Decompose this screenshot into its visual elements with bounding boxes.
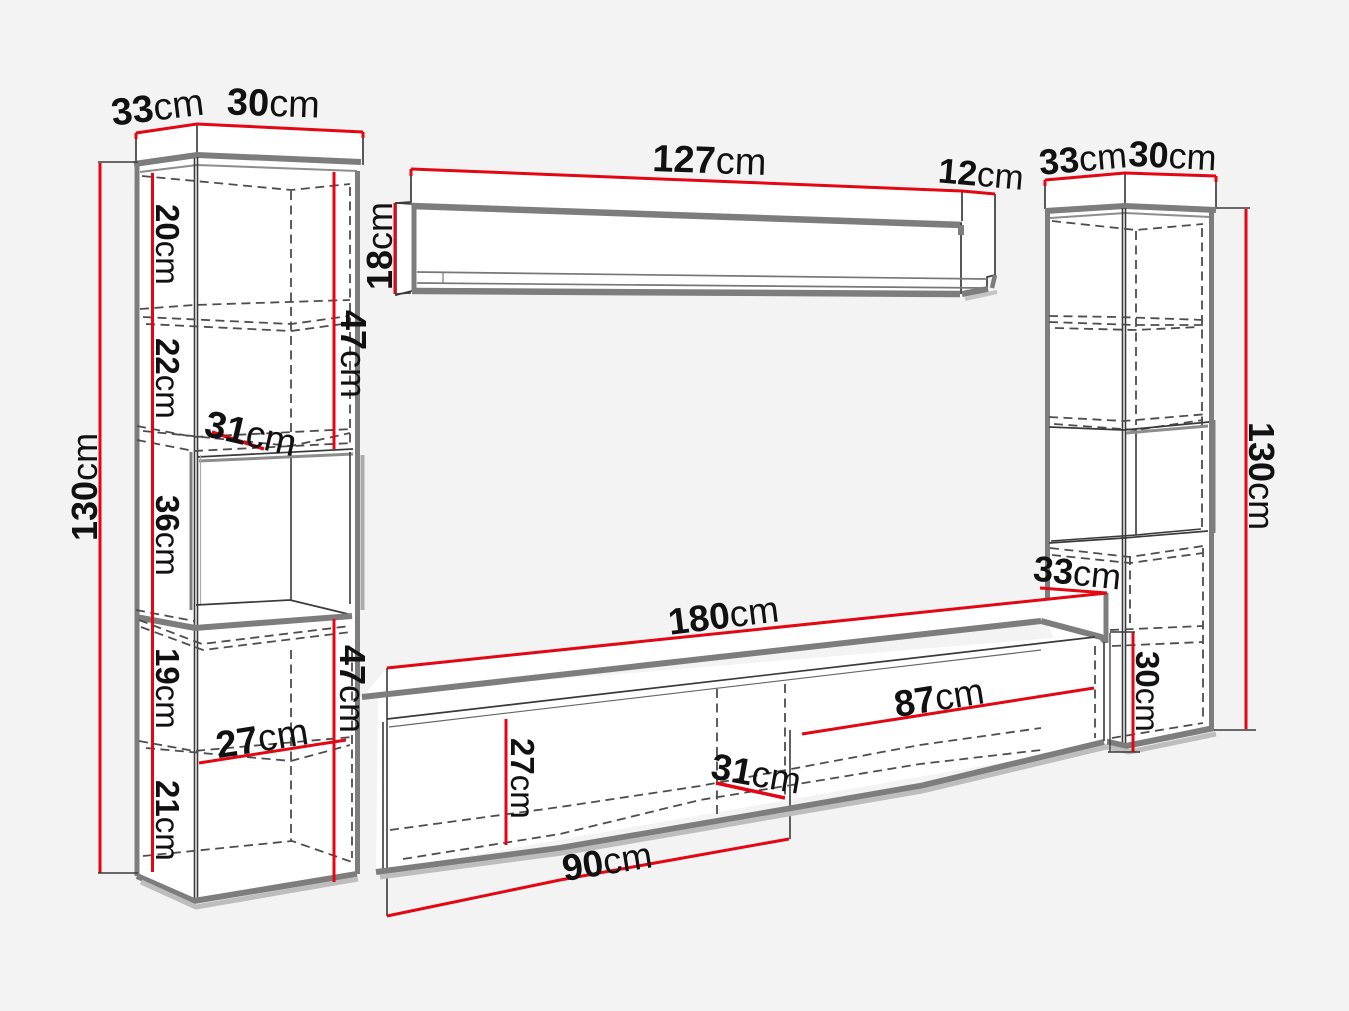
- svg-text:21cm: 21cm: [149, 780, 186, 861]
- svg-text:127cm: 127cm: [652, 138, 767, 184]
- svg-text:20cm: 20cm: [149, 204, 186, 285]
- svg-text:33cm: 33cm: [1037, 134, 1128, 183]
- svg-text:18cm: 18cm: [359, 202, 400, 290]
- svg-text:27cm: 27cm: [504, 738, 541, 819]
- svg-text:90cm: 90cm: [559, 834, 655, 889]
- svg-text:130cm: 130cm: [1241, 422, 1282, 530]
- svg-text:30cm: 30cm: [1129, 651, 1166, 732]
- svg-text:30cm: 30cm: [226, 81, 320, 126]
- svg-text:130cm: 130cm: [64, 433, 105, 541]
- svg-text:19cm: 19cm: [149, 648, 186, 729]
- svg-text:36cm: 36cm: [149, 495, 186, 576]
- svg-text:22cm: 22cm: [149, 338, 186, 419]
- svg-text:47cm: 47cm: [333, 310, 374, 398]
- svg-text:30cm: 30cm: [1128, 133, 1218, 179]
- svg-text:12cm: 12cm: [937, 151, 1026, 197]
- svg-text:47cm: 47cm: [332, 645, 373, 733]
